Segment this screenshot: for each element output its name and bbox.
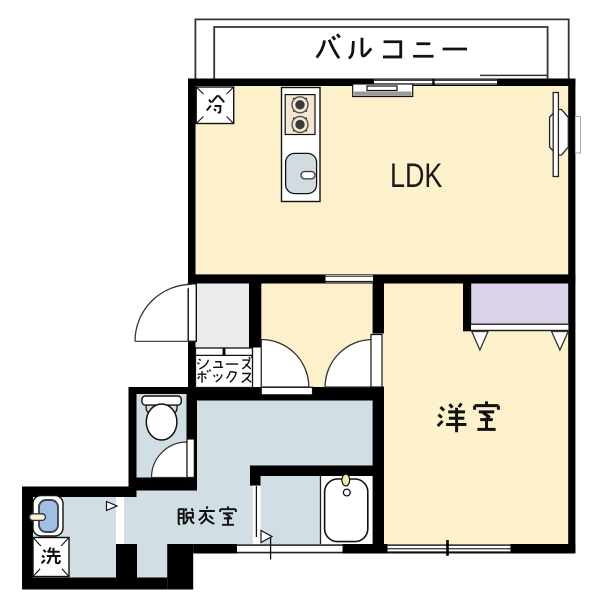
svg-text:LDK: LDK: [390, 156, 443, 195]
